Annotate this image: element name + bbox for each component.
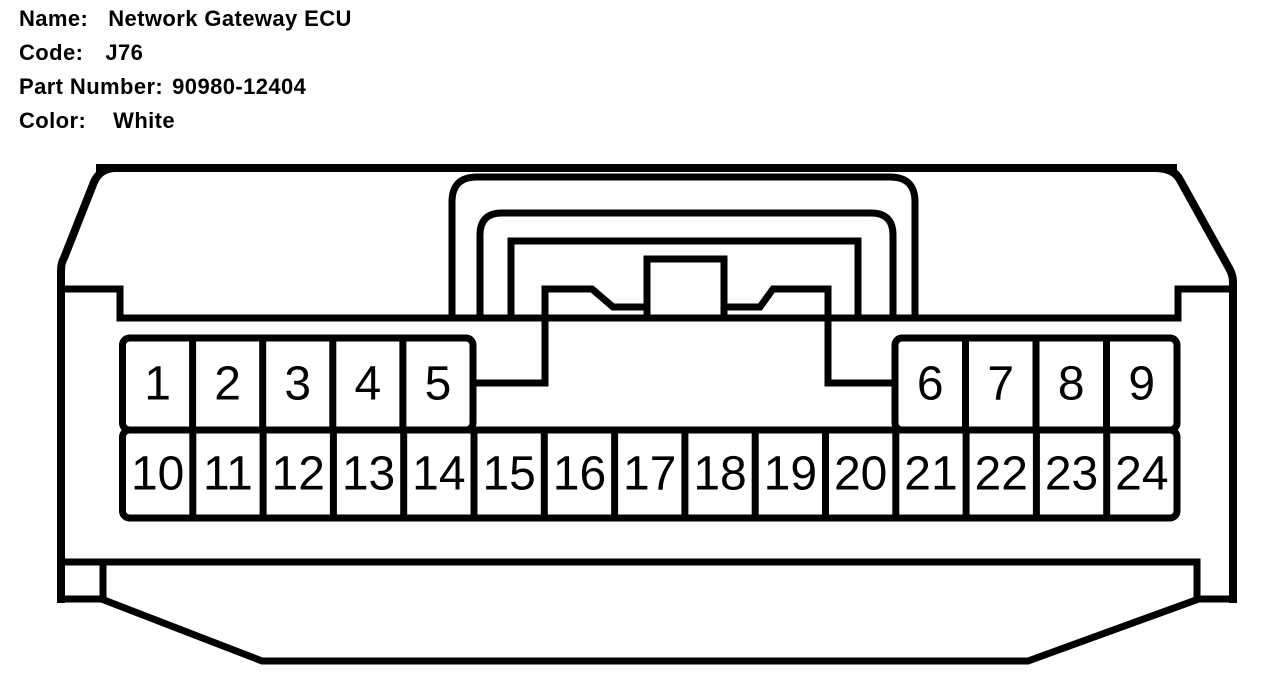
latch-outer-outline [452, 177, 915, 318]
latch-lock-tab [647, 259, 724, 318]
pin-6: 6 [917, 358, 944, 411]
pin-17: 17 [623, 448, 676, 501]
pin-19: 19 [764, 448, 817, 501]
pin-11: 11 [203, 448, 253, 501]
pin-5: 5 [425, 358, 452, 411]
pin-4: 4 [354, 358, 381, 411]
connector-pinout-page: Name:Network Gateway ECU Code:J76 Part N… [0, 0, 1280, 690]
latch-left-ramp-and-lead [473, 289, 647, 383]
latch-inner-frame [511, 241, 858, 318]
pin-16: 16 [553, 448, 606, 501]
pin-3: 3 [284, 358, 311, 411]
pin-1: 1 [144, 358, 171, 411]
pin-grid: 123456789101112131415161718192021222324 [123, 338, 1178, 518]
housing-left-notch [61, 562, 103, 599]
pin-12: 12 [272, 448, 325, 501]
housing-left-edge [61, 168, 116, 599]
latch-right-ramp-and-lead [724, 289, 895, 383]
pin-24: 24 [1115, 448, 1168, 501]
pin-2: 2 [214, 358, 241, 411]
pin-23: 23 [1045, 448, 1098, 501]
pin-20: 20 [834, 448, 887, 501]
pin-8: 8 [1058, 358, 1085, 411]
pin-9: 9 [1128, 358, 1155, 411]
pin-10: 10 [131, 448, 184, 501]
connector-drawing: 123456789101112131415161718192021222324 [0, 0, 1280, 690]
pin-22: 22 [975, 448, 1028, 501]
pin-15: 15 [482, 448, 535, 501]
pin-7: 7 [987, 358, 1014, 411]
housing-right-notch [1197, 562, 1231, 599]
housing-right-edge [1158, 168, 1233, 599]
pin-18: 18 [693, 448, 746, 501]
housing-bottom-skirt [104, 600, 1196, 661]
housing-left-step [61, 289, 120, 318]
pin-21: 21 [904, 448, 957, 501]
housing-right-step [1178, 289, 1233, 318]
pin-14: 14 [412, 448, 465, 501]
pin-13: 13 [342, 448, 395, 501]
